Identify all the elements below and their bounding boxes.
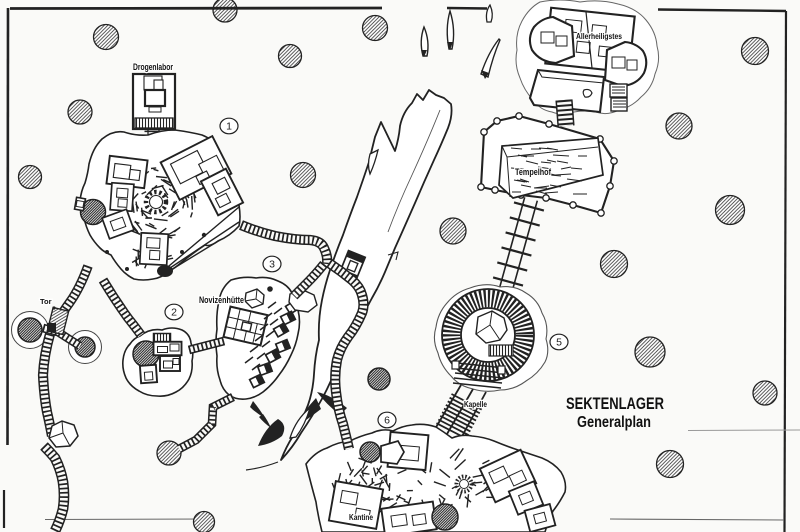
svg-text:Kantine: Kantine xyxy=(349,513,373,522)
svg-text:2: 2 xyxy=(171,307,177,319)
svg-text:Tor: Tor xyxy=(40,297,52,306)
svg-text:Drogenlabor: Drogenlabor xyxy=(133,62,173,72)
svg-text:Generalplan: Generalplan xyxy=(577,414,651,431)
svg-text:3: 3 xyxy=(269,259,275,271)
svg-text:Tempelhof: Tempelhof xyxy=(515,167,552,178)
svg-text:1: 1 xyxy=(226,121,232,133)
svg-text:5: 5 xyxy=(556,337,562,349)
svg-text:SEKTENLAGER: SEKTENLAGER xyxy=(566,394,664,413)
svg-text:Allerheiligstes: Allerheiligstes xyxy=(576,31,622,41)
svg-text:Kapelle: Kapelle xyxy=(464,400,487,409)
svg-text:6: 6 xyxy=(384,415,390,427)
svg-text:Novizenhütte: Novizenhütte xyxy=(199,295,244,305)
